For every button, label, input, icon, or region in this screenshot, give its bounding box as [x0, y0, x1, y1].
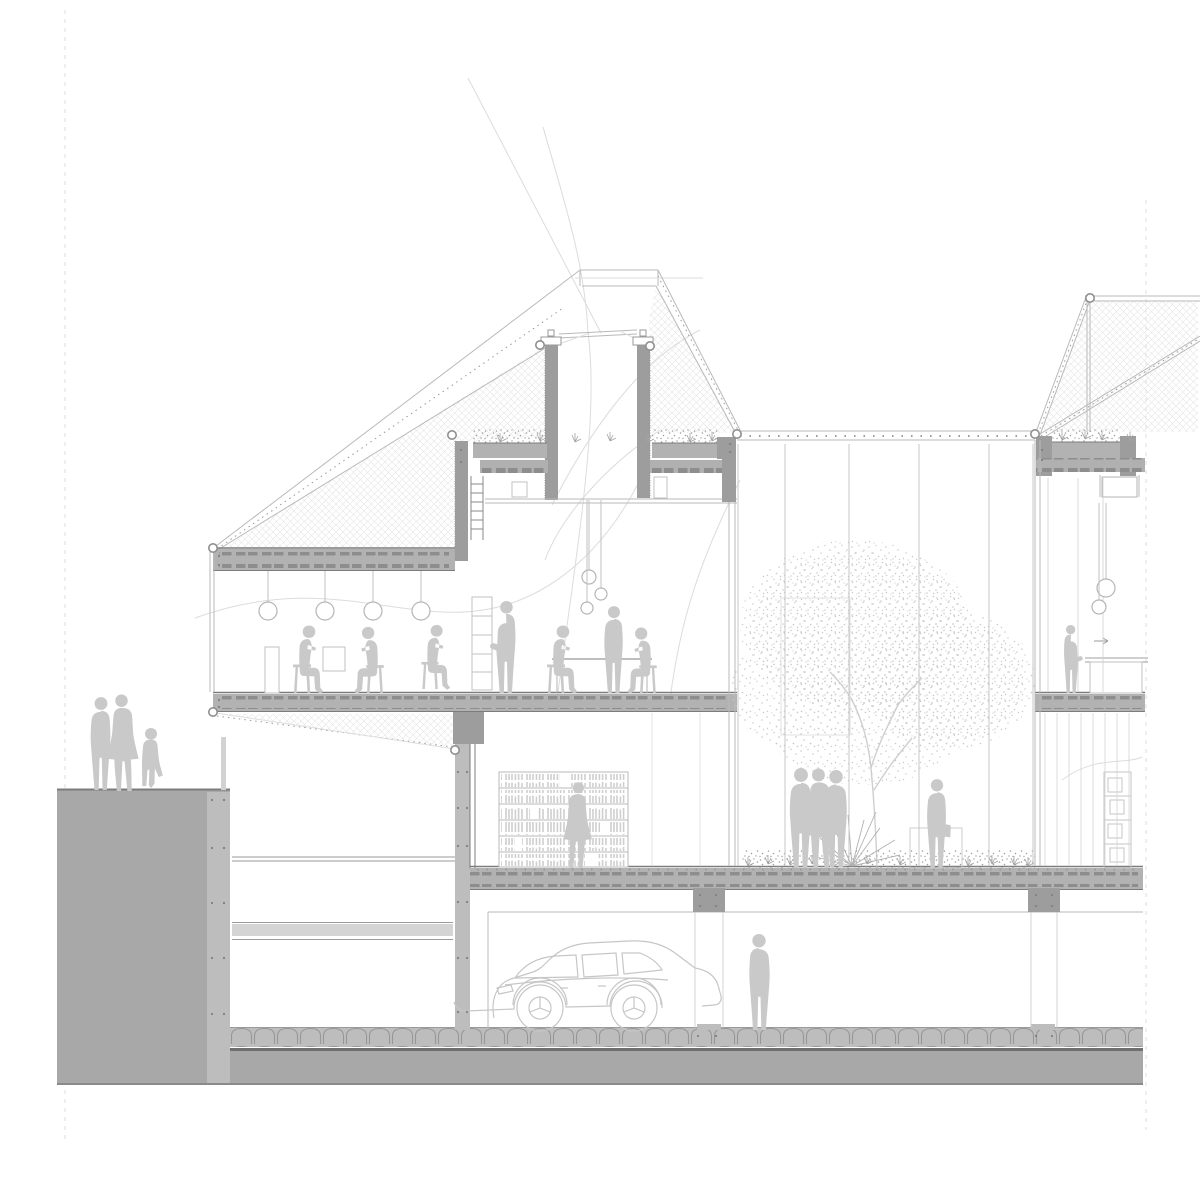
shaft-wall-right — [637, 345, 650, 498]
fastener-dot — [1051, 894, 1053, 896]
fastener-dot — [457, 901, 459, 903]
courtyard-right-wall — [1035, 440, 1040, 866]
fastener-dot — [699, 905, 701, 907]
green-roof-slab — [473, 443, 547, 458]
pendant-lamp — [595, 588, 607, 600]
library-bookshelf — [499, 772, 628, 867]
foundation-ground-strip — [230, 1051, 1143, 1083]
fastener-dot — [457, 845, 459, 847]
shaft-cap-detail — [548, 330, 554, 336]
cafe-desk — [323, 647, 345, 671]
right-shelf-stack — [1104, 772, 1131, 868]
fastener-dot — [466, 901, 468, 903]
cafe-floor-ribs — [220, 696, 730, 709]
garage-visitor — [749, 934, 769, 1030]
fastener-dot — [715, 1035, 717, 1037]
cafe-standing-cup — [490, 601, 515, 693]
plant-sprig — [607, 432, 616, 441]
fastener-dot — [729, 451, 731, 453]
fastener-dot — [223, 799, 225, 801]
plaza-child — [142, 728, 163, 788]
fastener-dot — [457, 771, 459, 773]
basement-mid-band — [232, 924, 453, 936]
green-roof-planting — [473, 428, 545, 443]
sight-line — [543, 127, 588, 333]
garage-column-capital — [693, 888, 725, 912]
cafe-seated-2 — [354, 627, 378, 694]
circulation-curve — [1062, 757, 1142, 780]
slim-column-lines — [470, 744, 475, 868]
mezzanine-ceiling-lines — [485, 499, 737, 503]
fastener-dot — [223, 1013, 225, 1015]
fastener-dot — [466, 807, 468, 809]
courtyard-left-wall-head — [722, 437, 736, 502]
basement-slab-arches — [230, 1028, 1143, 1047]
truss-node — [448, 431, 456, 439]
truss-node — [451, 746, 459, 754]
fastener-dot — [697, 1035, 699, 1037]
building-edge-pier — [455, 744, 470, 1030]
truss-node — [209, 708, 217, 716]
fastener-dot — [218, 706, 220, 708]
green-roof-planting — [652, 428, 718, 443]
drawing-page: Architectural cross-section drawing of a… — [0, 0, 1200, 1195]
wall-ladder — [471, 476, 483, 540]
fastener-dot — [218, 564, 220, 566]
fastener-dot — [1035, 894, 1037, 896]
plaza-adult-coat — [106, 694, 138, 791]
plaza-retaining-wall — [207, 792, 230, 1083]
fastener-dot — [1041, 459, 1043, 461]
book-row — [501, 790, 626, 803]
pendant-lamp — [581, 602, 593, 614]
plaza-adult — [91, 697, 111, 790]
shaft-cap-detail — [640, 330, 646, 336]
plaza-railing-post — [221, 737, 226, 790]
rib-band-pattern — [1036, 458, 1145, 472]
right-roof-hatch — [1040, 301, 1198, 432]
right-block-bar — [1085, 475, 1148, 693]
areaway-floor-lines — [232, 857, 455, 861]
bar-counter — [1090, 662, 1142, 693]
fastener-dot — [211, 957, 213, 959]
fastener-dot — [457, 807, 459, 809]
roof-planes — [216, 288, 1198, 747]
fastener-dot — [729, 443, 731, 445]
fastener-dot — [1041, 449, 1043, 451]
truss-node — [536, 341, 544, 349]
pendant-lamp — [1097, 579, 1115, 597]
cantilever-pier-block — [453, 712, 484, 744]
fastener-dot — [1051, 1035, 1053, 1037]
pendant-lamp — [316, 602, 334, 620]
green-roof-slab — [1052, 442, 1120, 458]
truss-node — [733, 430, 741, 438]
fastener-dot — [223, 957, 225, 959]
courtyard — [722, 437, 1040, 868]
cafe-ceiling-ribs — [219, 552, 449, 568]
courtyard-planting-bed — [742, 850, 1035, 868]
fastener-dot — [223, 847, 225, 849]
fastener-dot — [218, 555, 220, 557]
fastener-dot — [223, 902, 225, 904]
courtyard-roof-beam — [737, 431, 1035, 440]
car-windows — [515, 953, 662, 978]
pendant-lamp — [364, 602, 382, 620]
truss-node — [646, 342, 654, 350]
fastener-dot — [466, 771, 468, 773]
truss-node — [1086, 294, 1094, 302]
fastener-dot — [460, 461, 462, 463]
cafe-standing — [604, 606, 622, 693]
book-row — [501, 854, 626, 866]
sight-line — [468, 78, 601, 333]
clerestory-window — [512, 482, 527, 497]
fastener-dot — [715, 905, 717, 907]
fastener-dot — [699, 894, 701, 896]
pendant-lamp — [582, 570, 596, 584]
fastener-dot — [457, 1011, 459, 1013]
pendant-lamp — [259, 602, 277, 620]
right-roof-plateau — [1085, 296, 1200, 301]
car-details — [497, 985, 606, 994]
garage-car — [454, 941, 721, 1031]
counter-top-lines — [1085, 658, 1148, 662]
fastener-dot — [211, 902, 213, 904]
fastener-dot — [211, 1013, 213, 1015]
fastener-dot — [211, 799, 213, 801]
shaft-wall-texture — [545, 345, 650, 500]
fastener-dot — [466, 957, 468, 959]
shaft-wall-left — [545, 345, 558, 500]
skylight-shaft — [541, 330, 653, 500]
truss-node — [1031, 430, 1039, 438]
fastener-dot — [211, 847, 213, 849]
cafe-desk — [265, 647, 279, 693]
truss-node — [209, 544, 217, 552]
ground-floor-ribs — [460, 872, 1138, 887]
fastener-dot — [1051, 905, 1053, 907]
fastener-dot — [1035, 1035, 1037, 1037]
garage-column-capital — [1028, 888, 1060, 912]
rib-band-pattern — [480, 460, 548, 473]
clerestory-door — [654, 477, 667, 498]
rib-band-pattern — [650, 460, 722, 473]
bar-attendant — [1064, 625, 1083, 693]
right-floor-ribs — [1038, 696, 1143, 709]
plaza-ground-mass — [57, 790, 230, 1083]
pendant-lamp — [1092, 600, 1106, 614]
fastener-dot — [466, 845, 468, 847]
direction-arrow — [1094, 638, 1108, 644]
book-row — [501, 806, 626, 819]
roof-step-wall — [455, 441, 468, 561]
garage-column-base — [697, 1024, 721, 1030]
plant-sprig — [572, 433, 581, 442]
fastener-dot — [218, 699, 220, 701]
fastener-dot — [460, 449, 462, 451]
glass-beam-lines — [737, 431, 1035, 440]
cafe-seated-3 — [427, 625, 450, 690]
green-roof-slab — [652, 443, 725, 458]
pendant-lamp — [412, 602, 430, 620]
green-roofs — [473, 428, 1145, 476]
garage-column-base — [1031, 1024, 1055, 1030]
projection-screen — [1102, 477, 1137, 497]
fastener-dot — [466, 1011, 468, 1013]
section-drawing: Architectural cross-section drawing of a… — [0, 0, 1200, 1195]
fastener-dot — [1035, 905, 1037, 907]
fastener-dot — [457, 957, 459, 959]
cafe-left-glazing — [210, 552, 214, 692]
fastener-dot — [715, 894, 717, 896]
cafe-seated-1 — [299, 626, 323, 694]
